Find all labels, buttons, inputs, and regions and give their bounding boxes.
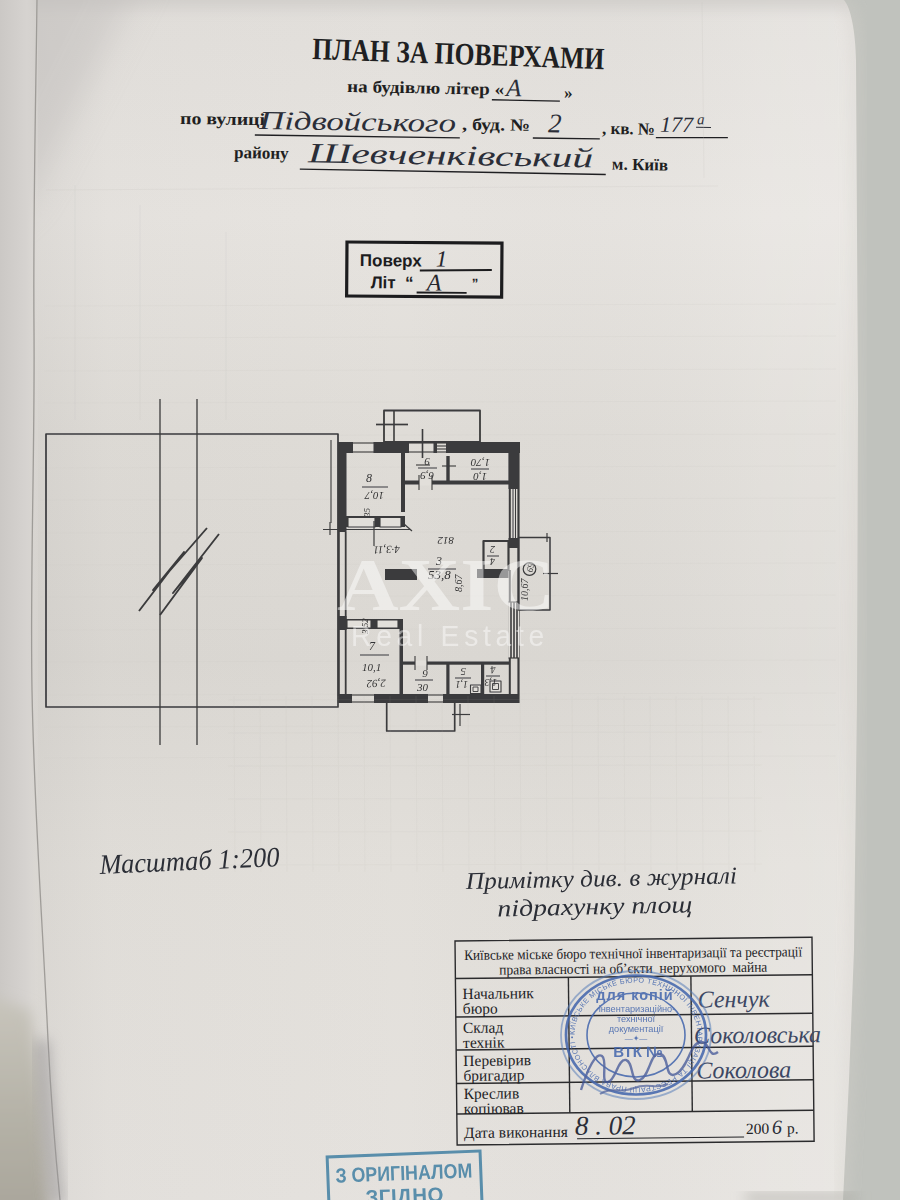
- svg-text:10,7: 10,7: [364, 490, 384, 502]
- svg-text:м. Київ: м. Київ: [612, 155, 668, 175]
- svg-text:по вулиці: по вулиці: [180, 109, 266, 129]
- svg-text:Поверх: Поверх: [360, 251, 423, 270]
- svg-text:5: 5: [460, 666, 466, 678]
- svg-text:р.: р.: [783, 1119, 799, 1136]
- svg-text:для копій: для копій: [596, 987, 674, 1003]
- svg-text:копіював: копіював: [464, 1099, 524, 1117]
- svg-text:Літ “: Літ “: [371, 273, 414, 292]
- svg-text:, кв. №: , кв. №: [602, 119, 655, 139]
- svg-text:А: А: [504, 74, 523, 101]
- svg-text:2: 2: [548, 108, 562, 138]
- svg-text:”: ”: [472, 276, 479, 291]
- svg-text:»: »: [564, 83, 573, 102]
- svg-text:9: 9: [424, 456, 430, 468]
- svg-text:2,92: 2,92: [366, 678, 386, 691]
- svg-text:30: 30: [416, 681, 429, 693]
- svg-text:ЗГІДНО: ЗГІДНО: [365, 1182, 444, 1200]
- svg-text:10,1: 10,1: [362, 661, 381, 673]
- svg-text:підрахунку площ: підрахунку площ: [497, 891, 693, 921]
- svg-text:6,9: 6,9: [420, 470, 434, 482]
- svg-text:бюро: бюро: [463, 1000, 498, 1017]
- svg-text:району: району: [234, 143, 289, 163]
- svg-text:177: 177: [660, 112, 694, 137]
- svg-text:1,3: 1,3: [485, 677, 498, 688]
- svg-text:Дата виконання: Дата виконання: [464, 1123, 568, 1141]
- svg-text:Сенчук: Сенчук: [697, 986, 770, 1013]
- svg-text:інвентаризаційно-: інвентаризаційно-: [599, 1004, 676, 1014]
- svg-text:АХІС: АХІС: [337, 544, 555, 626]
- svg-text:технік: технік: [463, 1033, 505, 1050]
- svg-text:6: 6: [772, 1116, 782, 1138]
- svg-text:Real Estate: Real Estate: [351, 619, 549, 652]
- svg-text:8: 8: [366, 471, 372, 485]
- svg-text:документації: документації: [609, 1024, 664, 1034]
- svg-text:6: 6: [422, 668, 428, 680]
- svg-text:Соколова: Соколова: [696, 1056, 791, 1083]
- svg-text:200: 200: [746, 1120, 770, 1137]
- svg-text:Шевченківський: Шевченківський: [306, 137, 593, 173]
- svg-text:8 . 02: 8 . 02: [575, 1110, 636, 1141]
- svg-text:бригадир: бригадир: [463, 1066, 525, 1084]
- svg-text:35: 35: [362, 508, 372, 519]
- svg-text:1,1: 1,1: [456, 679, 469, 690]
- svg-text:1,70: 1,70: [470, 457, 490, 469]
- svg-text:1,0: 1,0: [473, 471, 487, 483]
- svg-text:1: 1: [436, 247, 448, 272]
- svg-text:Соколовська: Соколовська: [694, 1021, 821, 1048]
- svg-text:, буд. №: , буд. №: [462, 115, 530, 135]
- svg-text:Підвойського: Підвойського: [258, 106, 457, 138]
- svg-text:технічної: технічної: [617, 1014, 656, 1024]
- svg-text:ВТК №: ВТК №: [613, 1043, 662, 1060]
- svg-text:на будівлю літер «: на будівлю літер «: [347, 77, 504, 99]
- svg-text:—✦—: —✦—: [625, 1034, 648, 1043]
